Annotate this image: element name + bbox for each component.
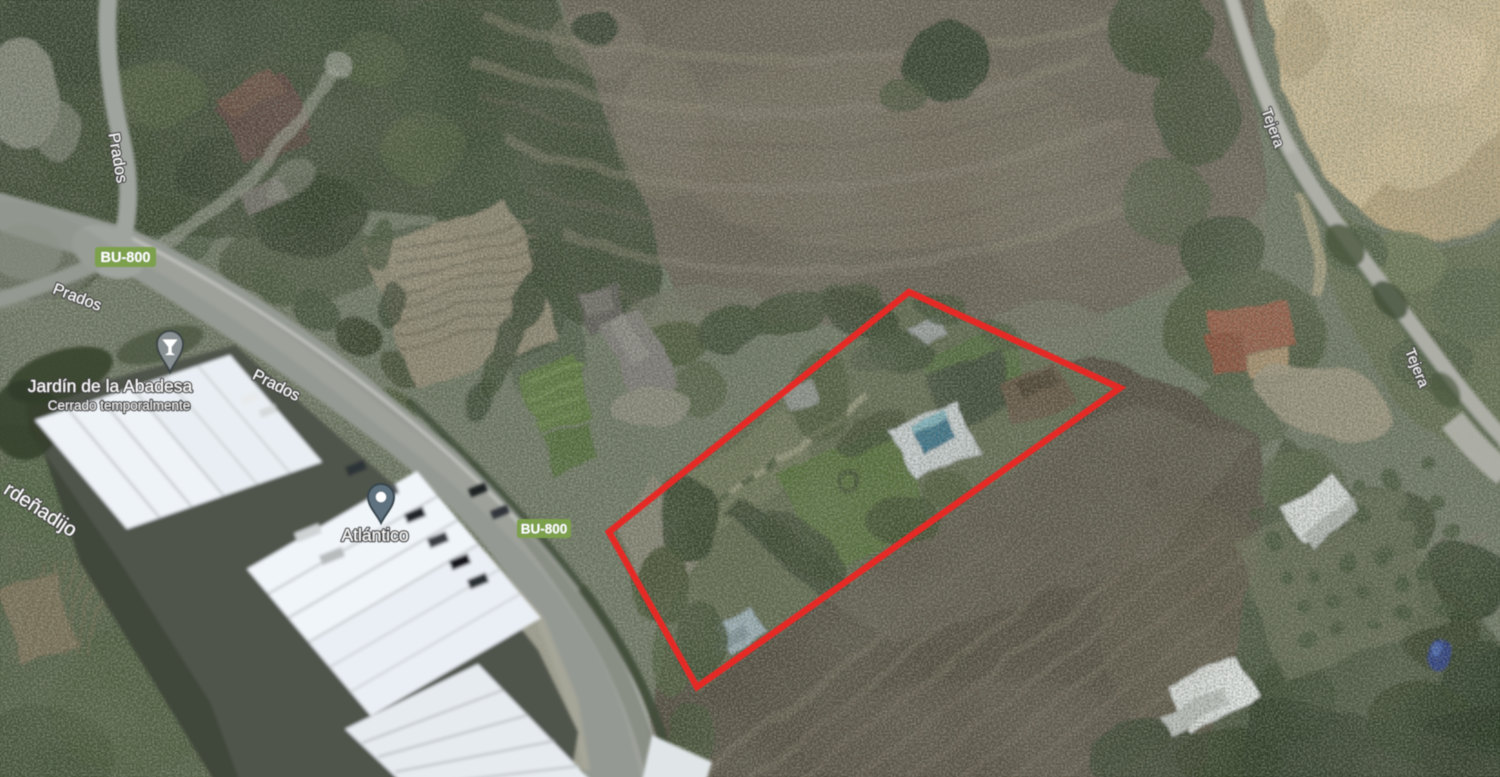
svg-text:Cerrado temporalmente: Cerrado temporalmente (48, 398, 191, 413)
svg-text:BU-800: BU-800 (521, 522, 568, 537)
svg-text:BU-800: BU-800 (101, 250, 151, 266)
svg-text:Atlántico: Atlántico (341, 525, 408, 545)
svg-text:Jardín de la Abadesa: Jardín de la Abadesa (28, 376, 193, 396)
